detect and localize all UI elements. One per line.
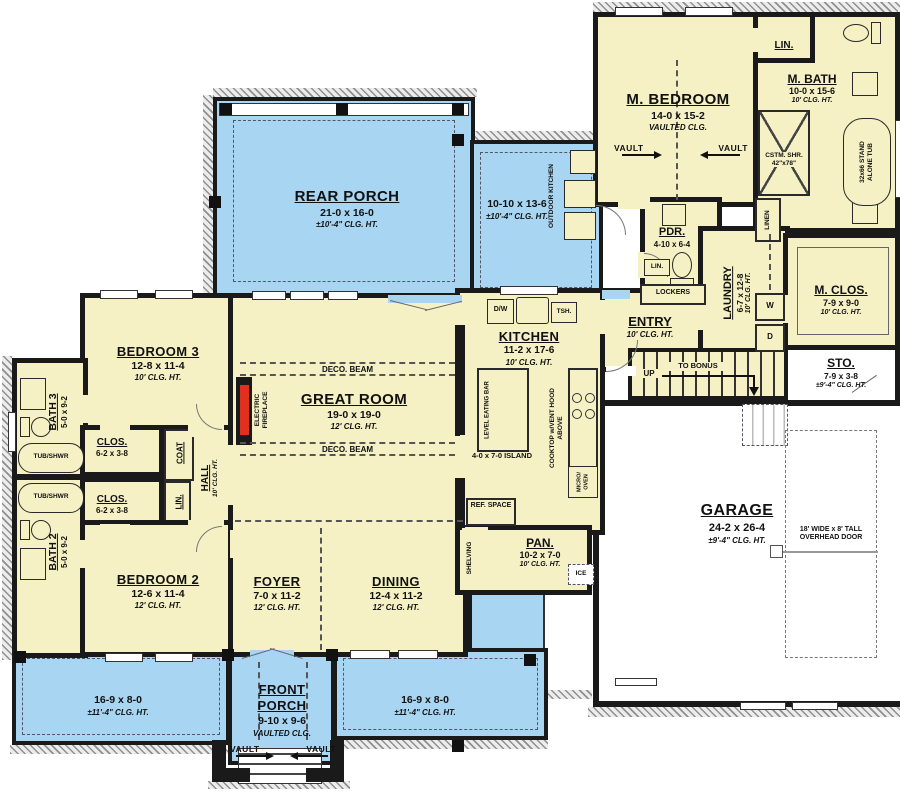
window (685, 7, 733, 16)
entry-label: ENTRY (612, 314, 688, 329)
pan-clg: 10' CLG. HT. (508, 561, 572, 569)
clos1-dims: 6-2 x 3-8 (86, 449, 138, 458)
opening-clos2-door (100, 524, 130, 534)
coat-label-text: COAT (175, 442, 184, 464)
pdr-sink (662, 204, 686, 226)
outdoor-kitchen-counter (564, 212, 596, 240)
vault-label: VAULT (614, 143, 644, 153)
wing-left-clg: ±11'-4" CLG. HT. (58, 708, 178, 717)
floor-plan: D/W TSH. LEVEL EATING BAR 4-0 x 7-0 ISLA… (0, 0, 900, 800)
deco-beam-label: DECO. BEAM (322, 365, 373, 374)
bedroom3-dims: 12-8 x 11-4 (108, 360, 208, 372)
foyer-clg: 12' CLG. HT. (237, 603, 317, 612)
window (615, 7, 663, 16)
pan-dims: 10-2 x 7-0 (508, 550, 572, 561)
electric-fireplace (240, 385, 249, 435)
outdoor-kitchen-sink (570, 150, 596, 174)
eating-bar-label: LEVEL EATING BAR (484, 381, 491, 439)
opening-clos1-door (100, 423, 130, 433)
sto-label: STO. (801, 356, 881, 370)
bath2-label-block: BATH 2 5-0 x 9-2 (47, 533, 69, 570)
bath3-label-block: BATH 3 5-0 x 9-2 (47, 393, 69, 430)
deco-beam: DECO. BEAM (240, 442, 455, 456)
hatch-strip (545, 690, 592, 699)
window (105, 653, 143, 662)
trash-label: TSH. (551, 308, 577, 316)
outdoor-kitchen-grill (564, 180, 596, 208)
hatch-strip (10, 745, 232, 754)
bath2-toilet-tank (20, 520, 30, 540)
opening (596, 300, 608, 334)
kitchen-dims: 11-2 x 17-6 (479, 345, 579, 357)
opening (230, 530, 242, 558)
dining-clg: 12' CLG. HT. (346, 603, 446, 612)
great-room-clg: 12' CLG. HT. (304, 422, 404, 431)
vault-label: VAULT (718, 143, 748, 153)
window (895, 120, 900, 198)
overhead-door-label: 18' WIDE x 8' TALL OVERHEAD DOOR (789, 526, 873, 543)
laundry-dash (769, 234, 771, 290)
ice-label: ICE (568, 570, 594, 578)
step-cheek-wall (212, 768, 250, 782)
kitchen-sink (516, 297, 549, 324)
m-bedroom-clg: VAULTED CLG. (628, 123, 728, 132)
vault-arrow-line (706, 154, 740, 156)
vault-arrow-head (654, 151, 662, 159)
sto-dims: 7-9 x 3-8 (801, 371, 881, 381)
opening-bath2-door (78, 540, 90, 568)
great-room-label: GREAT ROOM (274, 391, 434, 409)
window (155, 653, 193, 662)
clos2-label: CLOS. (86, 494, 138, 506)
clos2-dims: 6-2 x 3-8 (86, 506, 138, 515)
entry-clg: 10' CLG. HT. (612, 330, 688, 339)
bath2-dims: 5-0 x 9-2 (60, 533, 70, 570)
porch-post (222, 649, 234, 661)
ceiling-break-line (235, 520, 463, 522)
rear-porch-clg: ±10'-4" CLG. HT. (287, 220, 407, 229)
vault-arrow-line (296, 755, 328, 757)
side-porch-clg: ±10'-4" CLG. HT. (467, 212, 567, 221)
stairs-arrow-line (662, 375, 754, 377)
window (8, 412, 16, 452)
bedroom2-label: BEDROOM 2 (98, 572, 218, 587)
porch-post (336, 103, 348, 115)
m-clos-label: M. CLOS. (801, 283, 881, 297)
bedroom2-dims: 12-6 x 11-4 (108, 588, 208, 600)
side-yard-porch-strip (471, 591, 545, 653)
m-bath-toilet (843, 24, 869, 42)
burner-icon (572, 409, 582, 419)
opening-bath3-door (78, 395, 90, 423)
vault-arrow-right: VAULT (692, 143, 748, 157)
porch-post (220, 103, 232, 115)
laundry-dims: 6-7 x 12-8 (735, 266, 745, 319)
porch-edge-line (543, 591, 545, 653)
laundry-clg: 10' CLG. HT. (745, 266, 753, 319)
pdr-label: PDR. (646, 226, 698, 239)
hatch-strip (213, 88, 477, 97)
to-bonus-label: TO BONUS (668, 362, 728, 371)
entry-door-opening (602, 290, 630, 299)
tub-shwr-label: TUB/SHWR (20, 453, 82, 461)
porch-post (326, 649, 338, 661)
hatch-strip (470, 131, 605, 140)
hall-clg: 10' CLG. HT. (212, 459, 220, 497)
hatch-strip (333, 740, 548, 749)
porch-post (209, 196, 221, 208)
foyer-label: FOYER (237, 574, 317, 589)
great-room-dims: 19-0 x 19-0 (304, 409, 404, 421)
burner-icon (585, 409, 595, 419)
bath3-label: BATH 3 (47, 393, 60, 430)
window (615, 678, 657, 686)
window (252, 291, 286, 300)
dining-label: DINING (346, 574, 446, 589)
micro-oven-label: MICRO/ OVEN (576, 469, 589, 495)
bedroom3-clg: 10' CLG. HT. (108, 373, 208, 382)
porch-post (524, 654, 536, 666)
overhead-door-zone (785, 430, 877, 658)
lin-hall-label: LIN. (167, 494, 186, 509)
vault-arrow-head (266, 752, 274, 760)
window (350, 650, 390, 659)
m-bath-dims: 10-0 x 15-6 (772, 86, 852, 97)
m-bath-toilet-tank (871, 22, 881, 44)
hall-label-block: HALL 10' CLG. HT. (200, 459, 220, 497)
window (328, 291, 358, 300)
clos1-label: CLOS. (86, 437, 138, 449)
opening-lin-top-door (748, 28, 758, 52)
coat-label: COAT (168, 442, 187, 464)
window (155, 290, 193, 299)
vault-label: VAULT (306, 744, 336, 754)
opening (462, 527, 488, 535)
bedroom2-clg: 12' CLG. HT. (108, 601, 208, 610)
m-bath-clg: 10' CLG. HT. (772, 97, 852, 105)
linen-label: LINEN (764, 210, 772, 230)
window (740, 702, 786, 710)
wing-right-clg: ±11'-4" CLG. HT. (365, 708, 485, 717)
pdr-dims: 4-10 x 6-4 (646, 240, 698, 249)
foyer-dining-divider (320, 528, 322, 650)
lockers-label: LOCKERS (640, 289, 706, 297)
vault-arrow-right: VAULT (284, 744, 336, 758)
vault-arrow-line (622, 154, 656, 156)
vault-label: VAULT (230, 744, 260, 754)
window (290, 291, 324, 300)
custom-shower-label: CSTM. SHR. 42"x78" (760, 152, 808, 167)
vault-arrow-left: VAULT (230, 744, 282, 758)
bedroom3-label: BEDROOM 3 (98, 344, 218, 359)
bath2-vanity (20, 548, 46, 580)
window (792, 702, 838, 710)
dining-dims: 12-4 x 11-2 (346, 590, 446, 602)
dryer-label: D (755, 332, 785, 341)
lin-top-area (753, 12, 815, 63)
bath3-toilet-tank (20, 417, 30, 437)
window (100, 290, 138, 299)
cooktop-label: COOKTOP w/VENT HOOD ABOVE (549, 380, 565, 476)
bath3-vanity (20, 378, 46, 410)
kitchen-label: KITCHEN (479, 329, 579, 344)
front-porch-clg: VAULTED CLG. (236, 729, 328, 738)
garage-dims: 24-2 x 26-4 (677, 522, 797, 535)
step-cheek-wall (306, 768, 344, 782)
garage-clg: ±9'-4" CLG. HT. (677, 536, 797, 545)
overhead-door-line (781, 551, 878, 553)
side-porch-dims: 10-10 x 13-6 (467, 198, 567, 210)
overhead-door-motor (770, 545, 783, 558)
dishwasher-label: D/W (487, 306, 514, 314)
lin-hall-label-text: LIN. (174, 494, 183, 509)
m-bath-sink (852, 72, 878, 96)
deco-beam: DECO. BEAM (240, 362, 455, 376)
window (398, 650, 438, 659)
pan-label: PAN. (508, 536, 572, 550)
vault-arrow-left: VAULT (614, 143, 670, 157)
stairs-arrow-head (749, 387, 759, 396)
sto-clg: ±9'-4" CLG. HT. (801, 382, 881, 390)
deco-beam-label: DECO. BEAM (322, 445, 373, 454)
stairs-arrow-drop (753, 375, 755, 387)
rear-porch-label: REAR PORCH (247, 188, 447, 206)
m-bedroom-label: M. BEDROOM (598, 91, 758, 109)
washer-label: W (755, 301, 785, 310)
rear-porch-dims: 21-0 x 16-0 (297, 207, 397, 219)
bath3-dims: 5-0 x 9-2 (60, 393, 70, 430)
kitchen-clg: 10' CLG. HT. (479, 358, 579, 367)
front-porch-label: FRONT PORCH (236, 682, 328, 715)
cooktop-burners (570, 392, 596, 432)
lin-top-label: LIN. (764, 40, 804, 52)
m-bath-label: M. BATH (772, 72, 852, 86)
foyer-dims: 7-0 x 11-2 (237, 590, 317, 602)
wall (455, 325, 465, 435)
island-label: 4-0 x 7-0 ISLAND (470, 452, 534, 461)
pdr-lin-label: LIN. (644, 263, 670, 271)
m-clos-clg: 10' CLG. HT. (801, 309, 881, 317)
stairs-continuation (742, 404, 788, 446)
hall-label: HALL (200, 459, 212, 497)
laundry-label: LAUNDRY (722, 266, 735, 319)
porch-post (14, 651, 26, 663)
burner-icon (572, 393, 582, 403)
m-clos-dims: 7-9 x 9-0 (801, 298, 881, 309)
tub-shwr-label: TUB/SHWR (20, 493, 82, 501)
door-arc-m-bedroom (596, 205, 626, 235)
porch-post (452, 134, 464, 146)
vault-arrow-head (290, 752, 298, 760)
vault-arrow-head (700, 151, 708, 159)
vault-arrow-line (236, 755, 268, 757)
front-porch-dims: 9-10 x 9-6 (236, 715, 328, 727)
opening-mbed-door (618, 197, 650, 209)
garage-label: GARAGE (677, 502, 797, 521)
burner-icon (585, 393, 595, 403)
stand-alone-tub-label: 32x66 STAND ALONE TUB (859, 132, 875, 192)
bath2-label: BATH 2 (47, 533, 60, 570)
pdr-toilet (672, 252, 692, 278)
ref-space-label: REF. SPACE (468, 502, 514, 510)
stairs-up-label: UP (636, 369, 662, 378)
window (500, 286, 558, 295)
shelving-label: SHELVING (466, 542, 474, 575)
porch-post (452, 740, 464, 752)
hatch-strip (2, 356, 12, 660)
m-bedroom-dims: 14-0 x 15-2 (628, 110, 728, 122)
wing-left-dims: 16-9 x 8-0 (68, 694, 168, 706)
wall (14, 474, 86, 480)
porch-post (452, 103, 464, 115)
wing-right-dims: 16-9 x 8-0 (375, 694, 475, 706)
laundry-label-block: LAUNDRY 6-7 x 12-8 10' CLG. HT. (722, 266, 754, 319)
fireplace-label: ELECTRIC FIREPLACE (254, 377, 270, 443)
